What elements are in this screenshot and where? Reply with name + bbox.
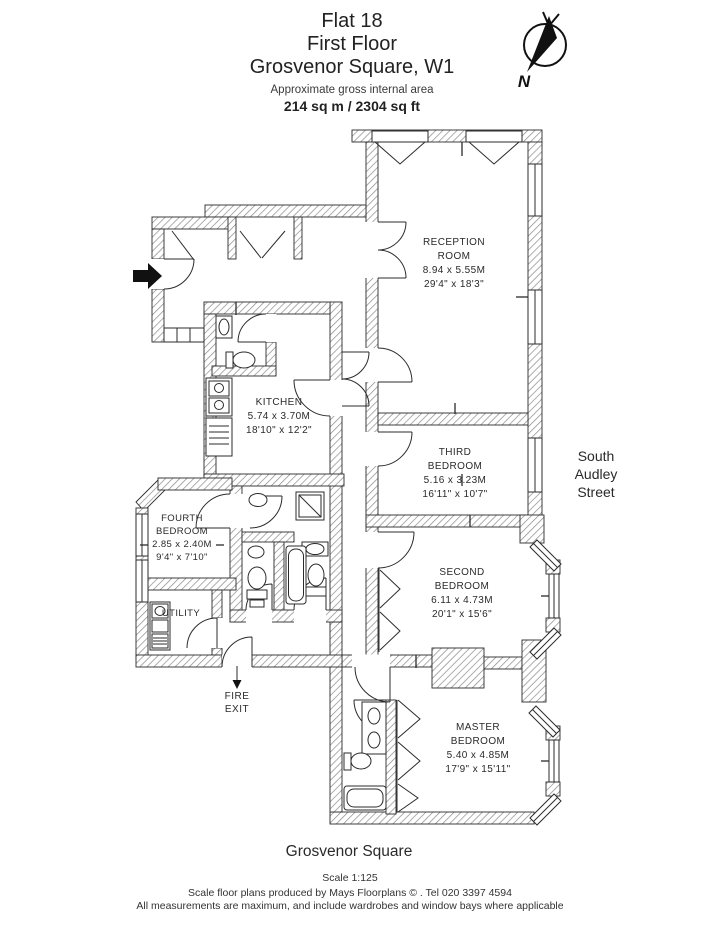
fire-exit-line1: FIRE bbox=[225, 691, 250, 704]
second-bedroom-name: SECOND bbox=[431, 566, 493, 580]
area-value: 214 sq m / 2304 sq ft bbox=[0, 98, 704, 114]
master-bedroom-name2: BEDROOM bbox=[445, 735, 510, 749]
kitchen-metric: 5.74 x 3.70M bbox=[246, 410, 312, 424]
fourth-bedroom-name: FOURTH bbox=[152, 512, 212, 525]
fire-exit-label: FIRE EXIT bbox=[225, 691, 250, 716]
door-openings-layer bbox=[152, 222, 391, 668]
reception-metric: 8.94 x 5.55M bbox=[423, 264, 486, 278]
floorplan-page: N Flat 18 First Floor Grosvenor Square, … bbox=[0, 0, 728, 951]
wardrobes-layer bbox=[379, 568, 420, 812]
room-label-third-bedroom: THIRD BEDROOM 5.16 x 3.23M 16'11" x 10'7… bbox=[422, 446, 487, 502]
floorplan-drawing: N bbox=[0, 0, 728, 951]
fourth-bedroom-metric: 2.85 x 2.40M bbox=[152, 538, 212, 551]
room-label-reception: RECEPTION ROOM 8.94 x 5.55M 29'4" x 18'3… bbox=[423, 236, 486, 292]
room-label-utility: UTILITY bbox=[162, 607, 200, 620]
fourth-bedroom-name2: BEDROOM bbox=[152, 525, 212, 538]
reception-name2: ROOM bbox=[423, 250, 486, 264]
second-bedroom-metric: 6.11 x 4.73M bbox=[431, 594, 493, 608]
street-label: South Audley Street bbox=[575, 447, 618, 501]
square-label: Grosvenor Square bbox=[286, 843, 413, 861]
reception-imperial: 29'4" x 18'3" bbox=[423, 278, 486, 292]
scale-note: Scale 1:125 bbox=[0, 872, 700, 884]
second-bedroom-imperial: 20'1" x 15'6" bbox=[431, 608, 493, 622]
master-bedroom-imperial: 17'9" x 15'11" bbox=[445, 763, 510, 777]
fire-exit-line2: EXIT bbox=[225, 704, 250, 717]
walls-layer bbox=[136, 130, 560, 824]
third-bedroom-name2: BEDROOM bbox=[422, 460, 487, 474]
kitchen-imperial: 18'10" x 12'2" bbox=[246, 424, 312, 438]
reception-name: RECEPTION bbox=[423, 236, 486, 250]
second-bedroom-name2: BEDROOM bbox=[431, 580, 493, 594]
room-label-kitchen: KITCHEN 5.74 x 3.70M 18'10" x 12'2" bbox=[246, 396, 312, 438]
measurements-disclaimer: All measurements are maximum, and includ… bbox=[0, 900, 700, 912]
kitchen-name: KITCHEN bbox=[246, 396, 312, 410]
utility-name: UTILITY bbox=[162, 607, 200, 620]
producer-credit: Scale floor plans produced by Mays Floor… bbox=[0, 887, 700, 899]
floor-title: First Floor bbox=[0, 33, 704, 56]
flat-title: Flat 18 bbox=[0, 10, 704, 33]
fourth-bedroom-imperial: 9'4" x 7'10" bbox=[152, 551, 212, 564]
third-bedroom-metric: 5.16 x 3.23M bbox=[422, 474, 487, 488]
street-line1: South bbox=[575, 447, 618, 465]
area-subtitle: Approximate gross internal area bbox=[0, 83, 704, 97]
room-label-fourth-bedroom: FOURTH BEDROOM 2.85 x 2.40M 9'4" x 7'10" bbox=[152, 512, 212, 564]
title-block: Flat 18 First Floor Grosvenor Square, W1… bbox=[0, 10, 704, 114]
street-line2: Audley bbox=[575, 465, 618, 483]
address-title: Grosvenor Square, W1 bbox=[0, 56, 704, 79]
room-label-master-bedroom: MASTER BEDROOM 5.40 x 4.85M 17'9" x 15'1… bbox=[445, 721, 510, 777]
room-label-second-bedroom: SECOND BEDROOM 6.11 x 4.73M 20'1" x 15'6… bbox=[431, 566, 493, 622]
street-line3: Street bbox=[575, 483, 618, 501]
master-bedroom-metric: 5.40 x 4.85M bbox=[445, 749, 510, 763]
master-bedroom-name: MASTER bbox=[445, 721, 510, 735]
fire-exit-arrow-icon bbox=[233, 666, 242, 689]
third-bedroom-name: THIRD bbox=[422, 446, 487, 460]
third-bedroom-imperial: 16'11" x 10'7" bbox=[422, 488, 487, 502]
